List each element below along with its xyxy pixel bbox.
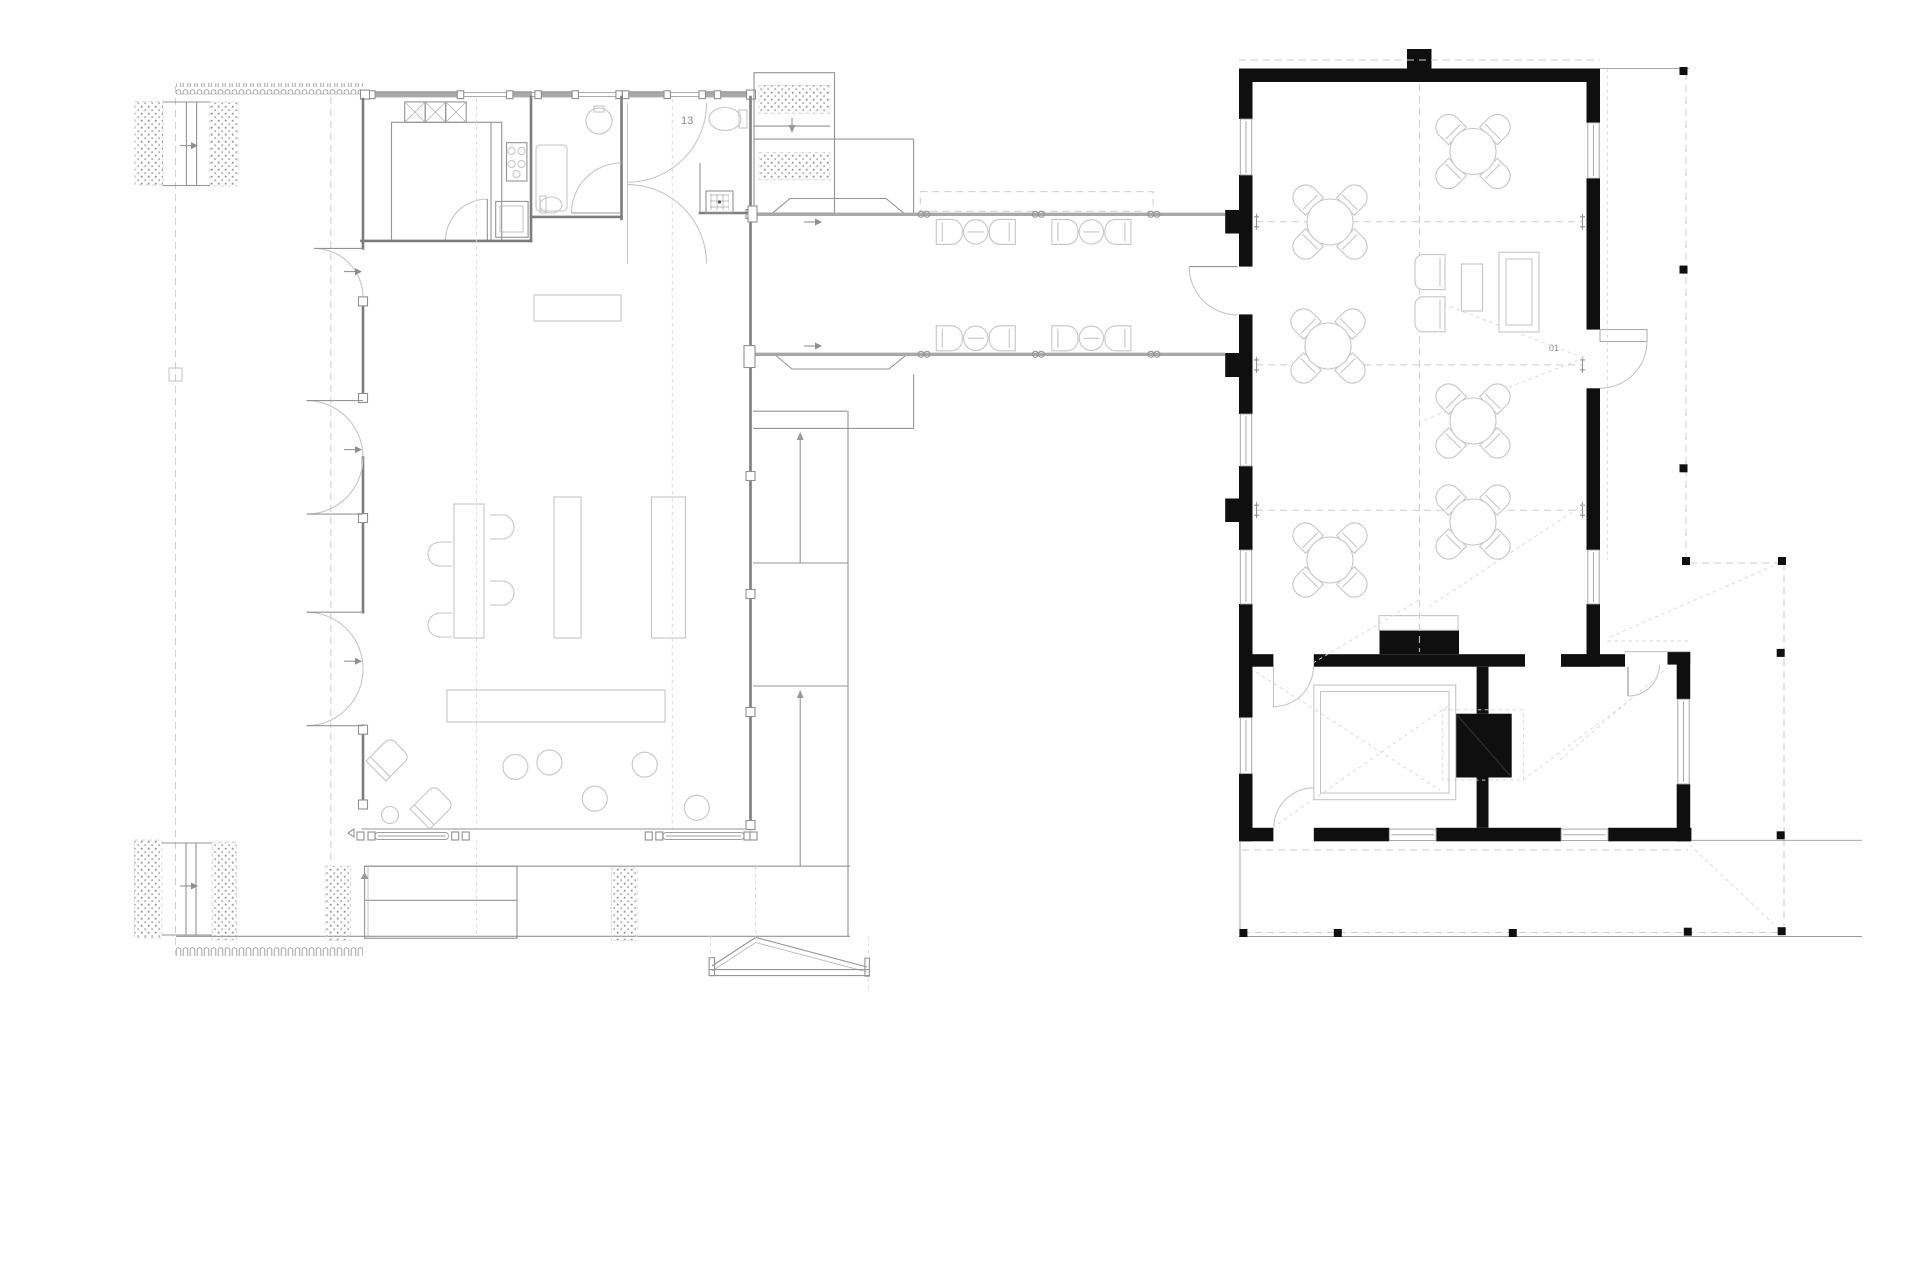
svg-text:13: 13 <box>681 115 693 127</box>
